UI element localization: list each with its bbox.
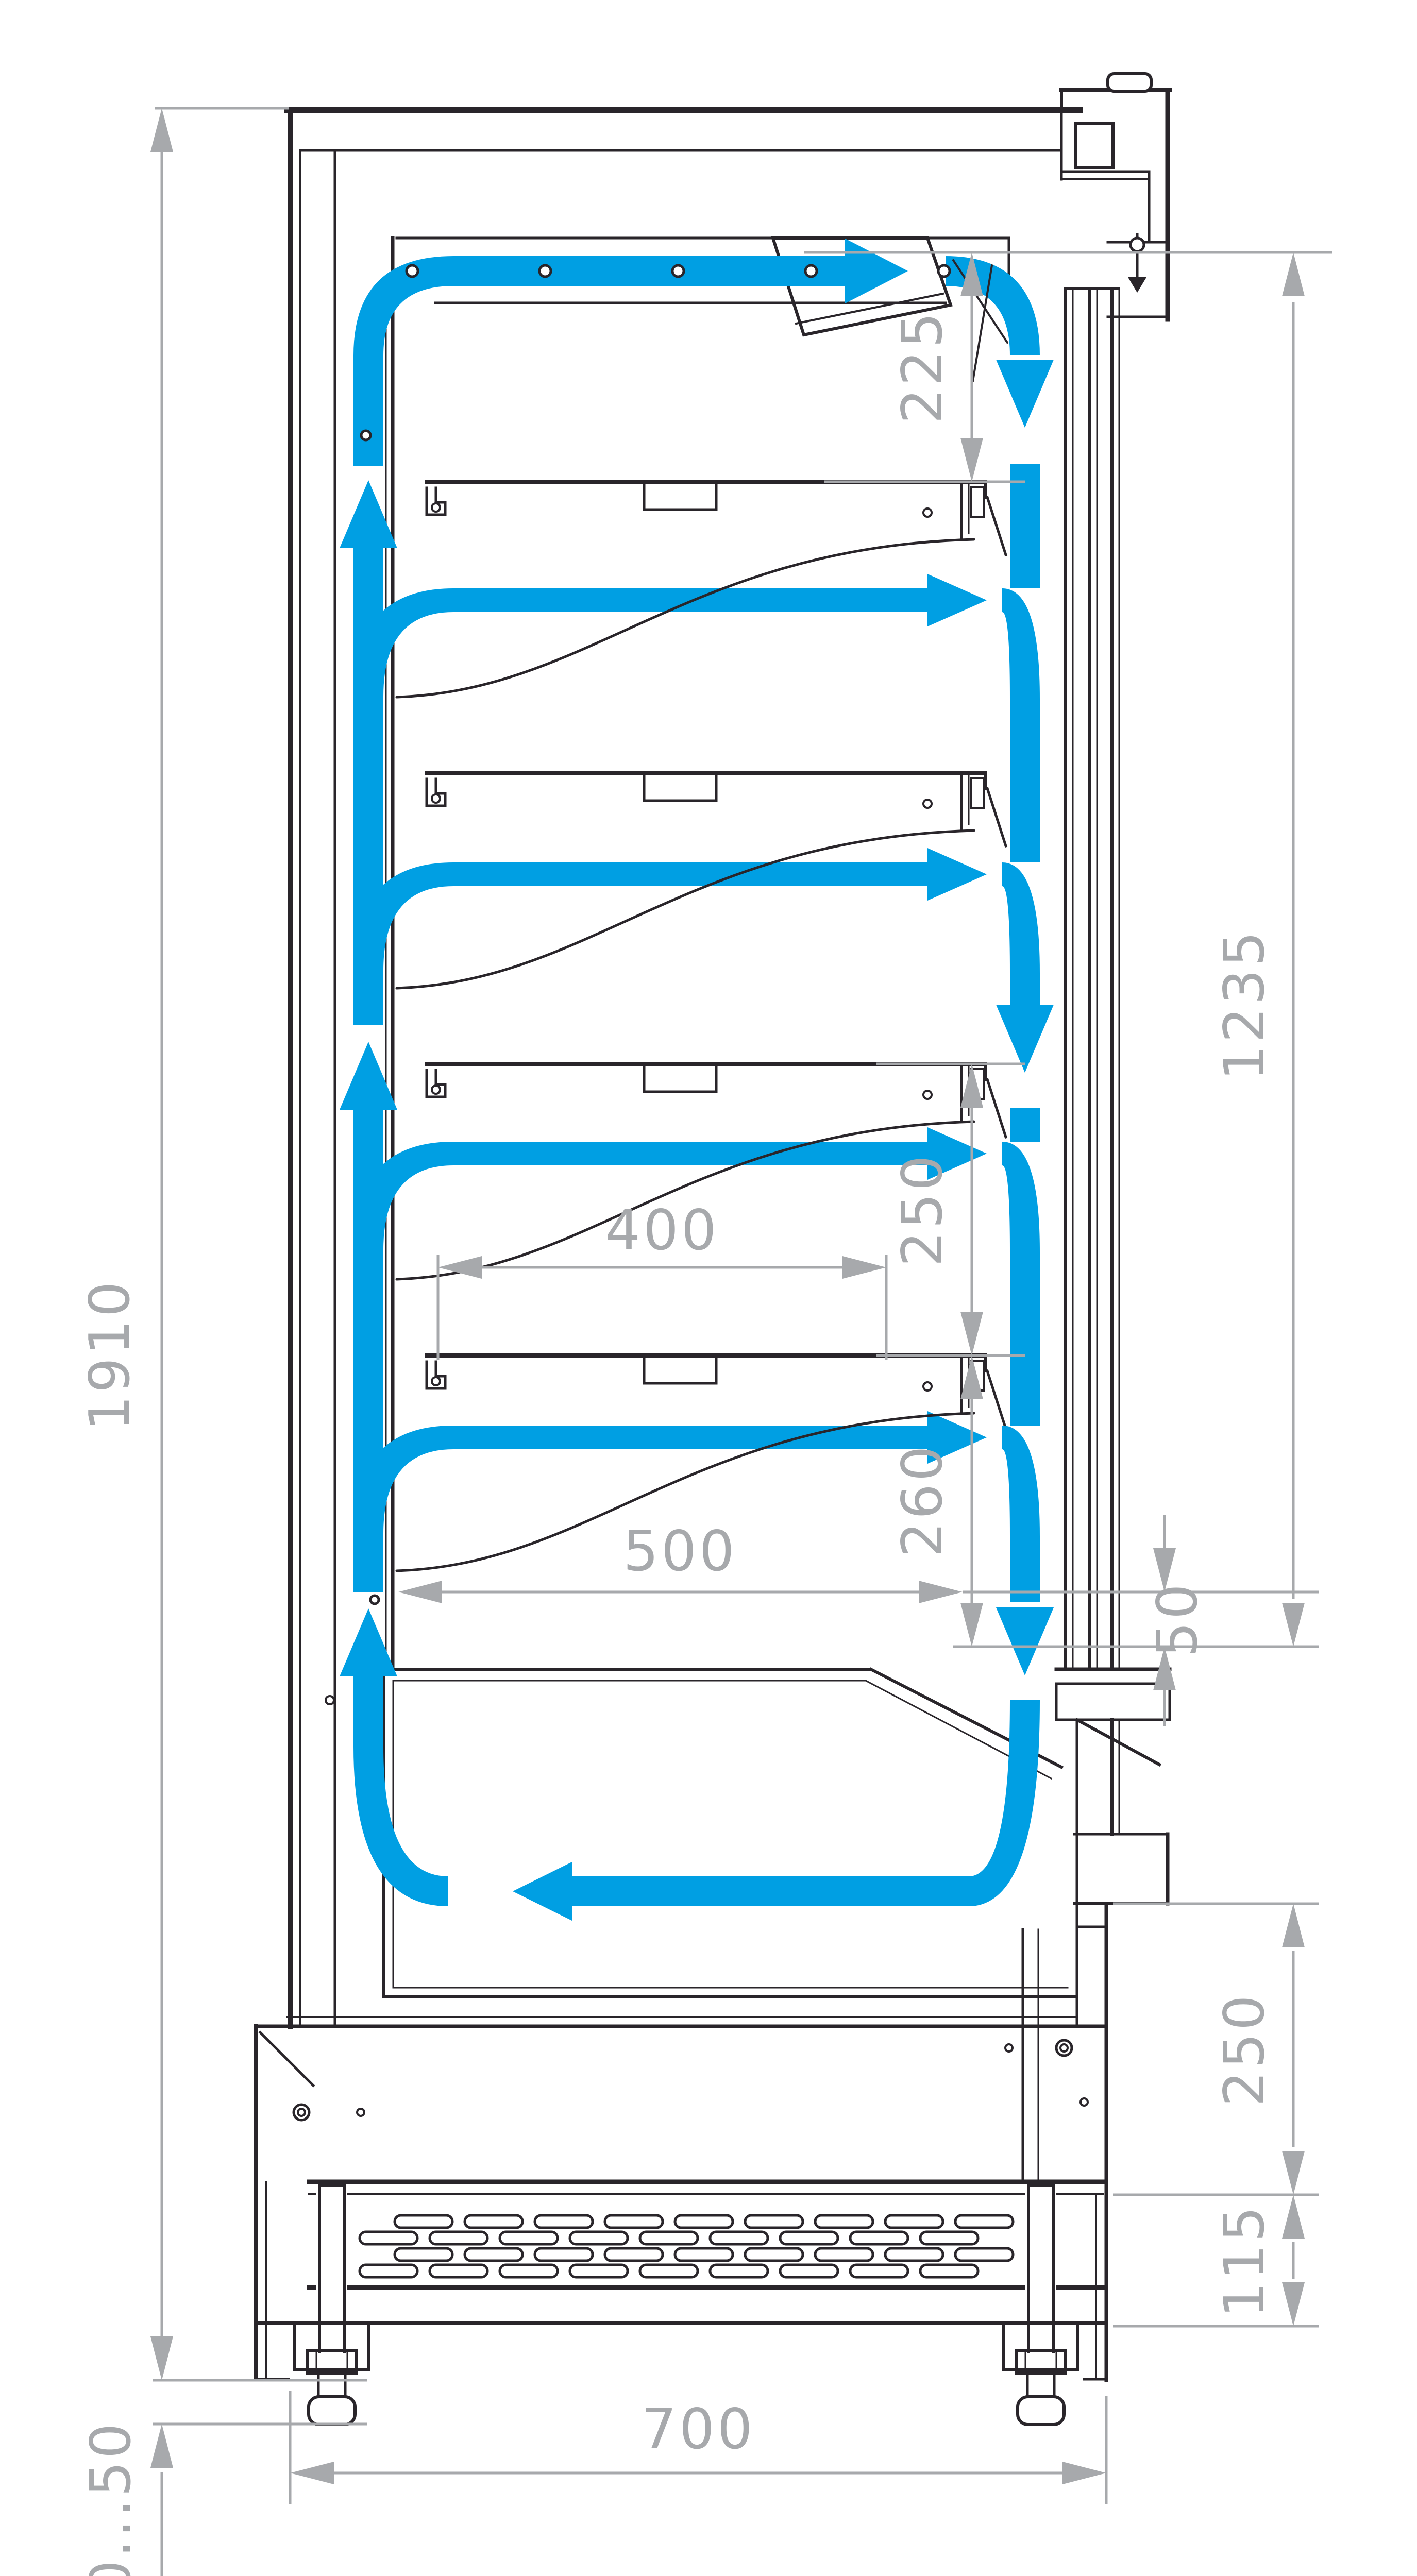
adjustable-foot <box>295 2185 369 2425</box>
dim-bottom-shelf-spacing: 260 <box>890 1443 955 1557</box>
dim-display-opening-height: 1235 <box>1212 929 1277 1081</box>
dim-shelf-spacing: 250 <box>890 1153 955 1266</box>
adjustable-foot <box>1004 2185 1078 2425</box>
dim-overall-depth: 700 <box>641 2397 755 2462</box>
airflow-front-arrowhead <box>996 360 1054 428</box>
airflow-top-band <box>453 256 845 286</box>
dim-bottom-depth: 500 <box>623 1519 737 1584</box>
ventilation-grille <box>360 2215 1013 2277</box>
airflow-front-arrowhead <box>996 1005 1054 1073</box>
structure-over-airflow <box>361 260 1007 1604</box>
dim-vent-grille-height: 115 <box>1212 2204 1277 2317</box>
dim-air-outlet-gap: 50 <box>1145 1581 1210 1657</box>
airflow-front-arrowhead <box>996 1607 1054 1675</box>
dim-top-clearance: 225 <box>890 310 955 423</box>
airflow-tray-band <box>572 1876 969 1906</box>
dimension-arrowheads <box>150 108 1305 2484</box>
glass-door <box>1066 289 1119 1669</box>
dim-foot-adjust-range: 30...50 <box>79 2421 143 2576</box>
door-sill <box>1056 1669 1170 1904</box>
dim-shelf-depth: 400 <box>605 1198 719 1263</box>
airflow-top-arrowhead <box>845 239 908 303</box>
refrigerated-cabinet-cross-section: 1910 30...50 225 250 260 1235 50 250 115… <box>0 0 1417 2576</box>
dim-base-height: 250 <box>1212 1992 1277 2106</box>
dim-overall-height: 1910 <box>78 1279 142 1431</box>
airflow-tray-arrowhead <box>513 1862 572 1921</box>
